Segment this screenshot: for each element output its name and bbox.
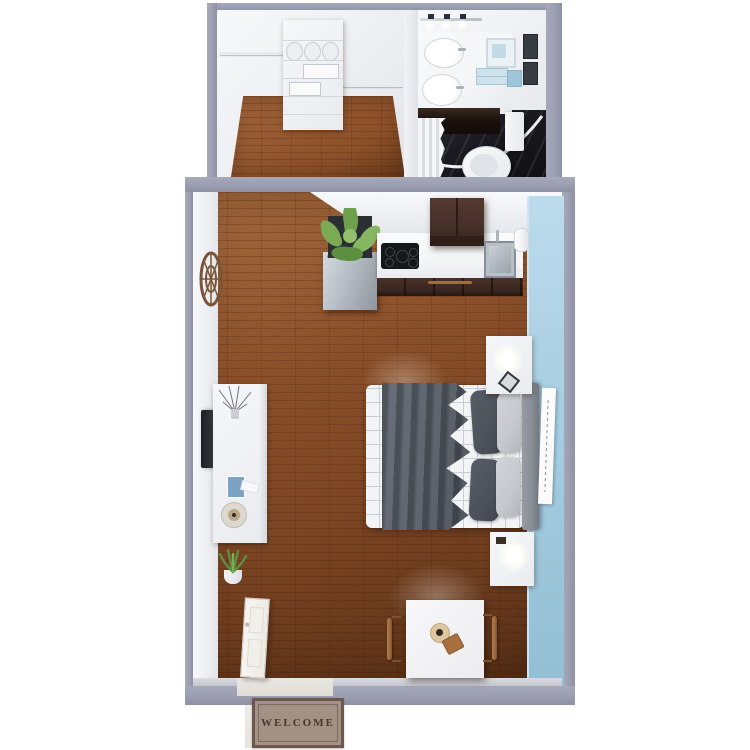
welcome-mat-border: WELCOME — [258, 704, 338, 742]
light-bulb-glow — [456, 19, 468, 31]
towel-frame — [486, 38, 516, 68]
door-panel — [249, 607, 265, 634]
closet-shelving-unit — [283, 20, 343, 130]
dining-chair-left — [387, 616, 407, 662]
towel-roll — [304, 42, 321, 61]
plant-leaves — [218, 548, 248, 574]
large-potted-plant — [318, 208, 382, 264]
dining-chair-right — [480, 614, 497, 662]
wire-basket — [289, 82, 321, 96]
chair-leg — [483, 614, 492, 616]
lower-cabinets — [377, 278, 523, 296]
burner — [409, 248, 418, 257]
burner — [396, 250, 409, 263]
chair-leg — [392, 660, 401, 662]
chair-leg — [483, 660, 492, 662]
chair-back — [387, 618, 392, 660]
media-console — [213, 384, 267, 543]
light-bulb-glow — [424, 19, 436, 31]
door-panel — [247, 639, 263, 668]
hanging-rod-right — [343, 84, 403, 87]
wall-frame-dark — [523, 34, 538, 59]
oven-handle — [428, 281, 472, 284]
toilet-seat — [470, 154, 498, 177]
towel-roll — [322, 42, 339, 61]
decor-book — [496, 537, 506, 544]
table-lamp — [500, 351, 513, 368]
shower-curtain — [418, 118, 446, 177]
pillow-light — [496, 457, 520, 517]
bathroom-sink — [424, 38, 464, 68]
toilet-tank — [505, 112, 524, 151]
left-outer-wall-top-section — [207, 3, 217, 177]
cabinet-front-shadow — [430, 236, 484, 246]
floor-plan-canvas: WELCOME — [0, 0, 750, 750]
right-outer-wall-top-section — [546, 3, 562, 177]
shelf-line — [283, 96, 343, 97]
table-lamp — [506, 546, 520, 563]
shelf-line — [283, 40, 343, 41]
welcome-mat: WELCOME — [252, 698, 344, 748]
nightstand-bottom — [490, 532, 534, 586]
cooktop — [381, 243, 419, 269]
branch-vase — [215, 384, 255, 420]
light-bulb-glow — [440, 19, 452, 31]
burner — [385, 247, 395, 257]
kitchen-faucet — [496, 230, 499, 242]
bathroom — [418, 10, 546, 177]
sink-basin — [489, 246, 511, 273]
entry-door — [240, 597, 270, 678]
record-player — [221, 502, 247, 528]
middle-dividing-wall — [185, 177, 575, 192]
left-outer-wall-main — [185, 192, 193, 705]
towel-fold-line — [477, 76, 507, 77]
headboard — [522, 383, 539, 530]
plant-leaves — [318, 208, 382, 264]
bathroom-sink — [422, 74, 462, 106]
hanging-rod-left — [220, 52, 284, 55]
burner — [385, 258, 394, 267]
closet-room — [217, 10, 404, 177]
burner — [408, 258, 418, 268]
main-room — [193, 192, 562, 686]
pillow-light — [497, 393, 521, 453]
upper-cabinets — [430, 198, 484, 246]
tissue-box — [507, 70, 522, 87]
place-setting-bowl — [436, 629, 443, 636]
shelf-line — [283, 114, 343, 115]
paper-towel-roll — [514, 228, 529, 252]
wire-basket — [303, 64, 339, 79]
welcome-mat-text: WELCOME — [259, 705, 337, 741]
faucet — [458, 48, 466, 51]
towel-frame-inner — [492, 44, 506, 58]
record-center — [232, 513, 236, 517]
faucet — [456, 86, 464, 89]
dining-table — [406, 600, 484, 678]
kitchen-sink — [484, 241, 516, 278]
bed — [366, 383, 533, 530]
console-side-face — [259, 384, 267, 543]
chair-leg — [392, 616, 401, 618]
small-potted-plant — [218, 548, 248, 585]
towel-roll — [286, 42, 303, 61]
nightstand-top — [486, 336, 532, 394]
wall-art-script — [544, 400, 548, 492]
wall-clock — [198, 250, 224, 308]
chair-back — [492, 616, 497, 660]
wall-frame-dark — [523, 62, 538, 85]
folded-towels — [476, 68, 508, 85]
closet-bathroom-divider-wall — [404, 10, 418, 177]
entry-threshold — [237, 678, 333, 696]
